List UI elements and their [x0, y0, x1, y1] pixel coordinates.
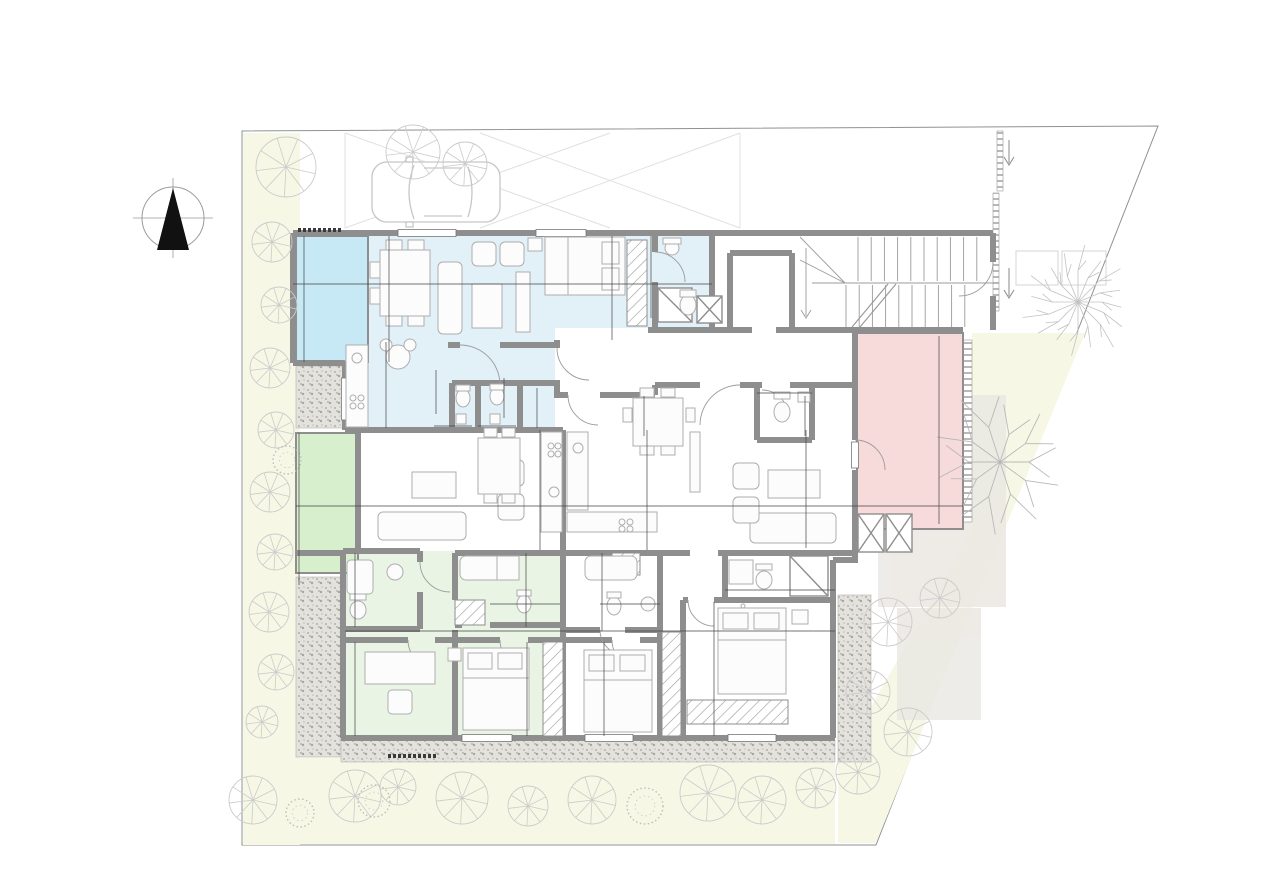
kitchen-102: [541, 432, 562, 532]
shaft-box: [697, 296, 722, 323]
veranda-blue: [296, 236, 368, 362]
unit-101-area: [857, 333, 972, 529]
pergola-strip: [963, 340, 972, 522]
storage-box-2: [886, 514, 912, 552]
north-arrow: [133, 178, 213, 258]
floor-plan-canvas: [0, 0, 1280, 877]
north-triangle: [157, 188, 189, 250]
storage-box-1: [858, 514, 884, 552]
dining-table-102: [478, 428, 520, 503]
bed-101a: [584, 650, 652, 732]
floor-plan-page: [0, 0, 1280, 877]
veranda-pink: [857, 333, 963, 529]
